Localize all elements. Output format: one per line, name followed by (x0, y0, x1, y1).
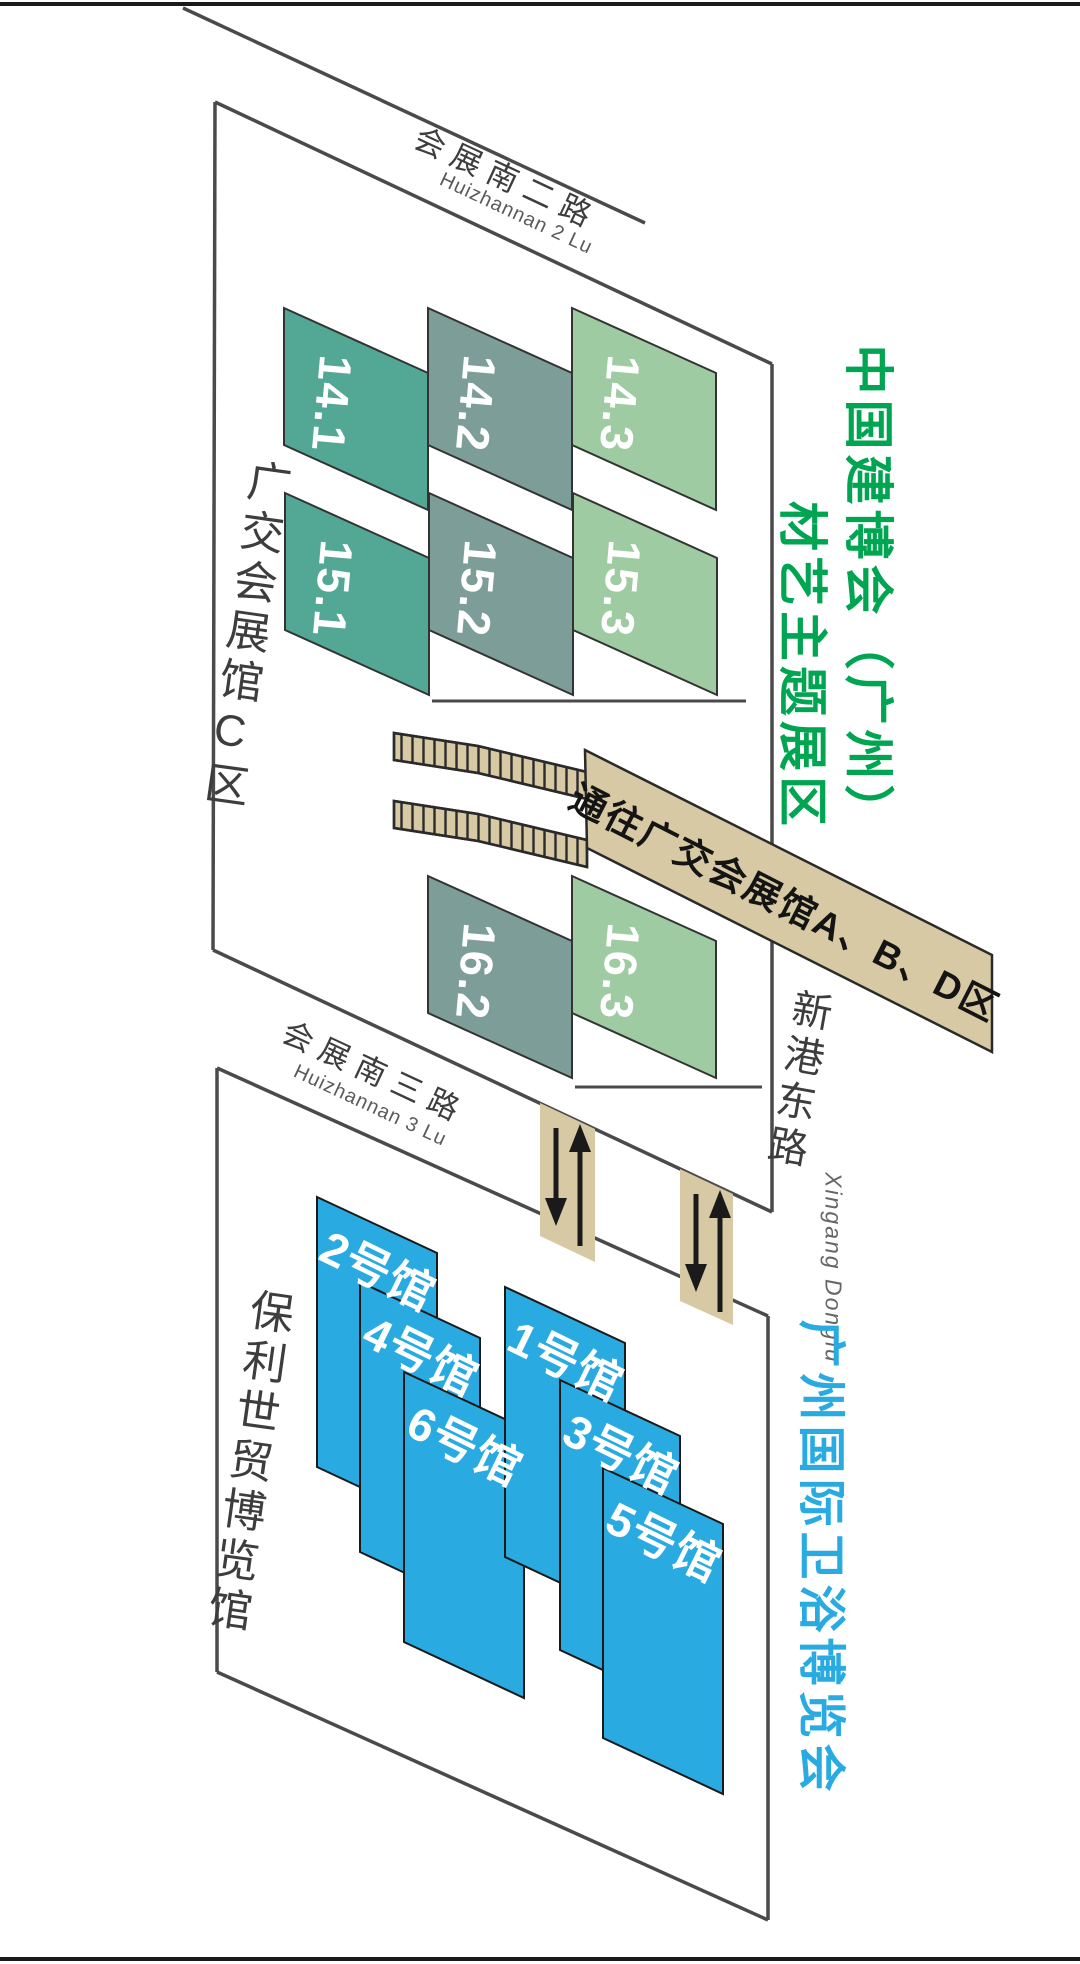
crosswalk-1 (540, 1103, 595, 1262)
hall-15-2-label: 15.2 (446, 538, 508, 640)
hall-16-3-label: 16.3 (589, 921, 651, 1023)
crosswalk-2 (680, 1169, 733, 1325)
hall-15-3-label: 15.3 (590, 538, 652, 640)
expo-title-blue: 广州国际卫浴博览会 (791, 1319, 861, 1796)
walkway-bridge-1-hatch (394, 733, 587, 799)
walkway-bridge-2-hatch (394, 801, 587, 867)
hall-14-1-label: 14.1 (301, 353, 363, 455)
exhibition-venue-map: 会展南二路 Huizhannan 2 Lu 会展南三路 Huizhannan 3… (0, 0, 1080, 1964)
hall-14-2-label: 14.2 (445, 353, 507, 455)
hall-15-1-label: 15.1 (302, 538, 364, 640)
expo-title-green-line2: 材艺主题展区 (770, 501, 842, 831)
hall-14-3-label: 14.3 (589, 353, 651, 455)
expo-title-green-line1: 中国建博会（广州） (836, 345, 908, 840)
hall-16-2-label: 16.2 (445, 921, 507, 1023)
area-c-left-border (213, 102, 215, 950)
